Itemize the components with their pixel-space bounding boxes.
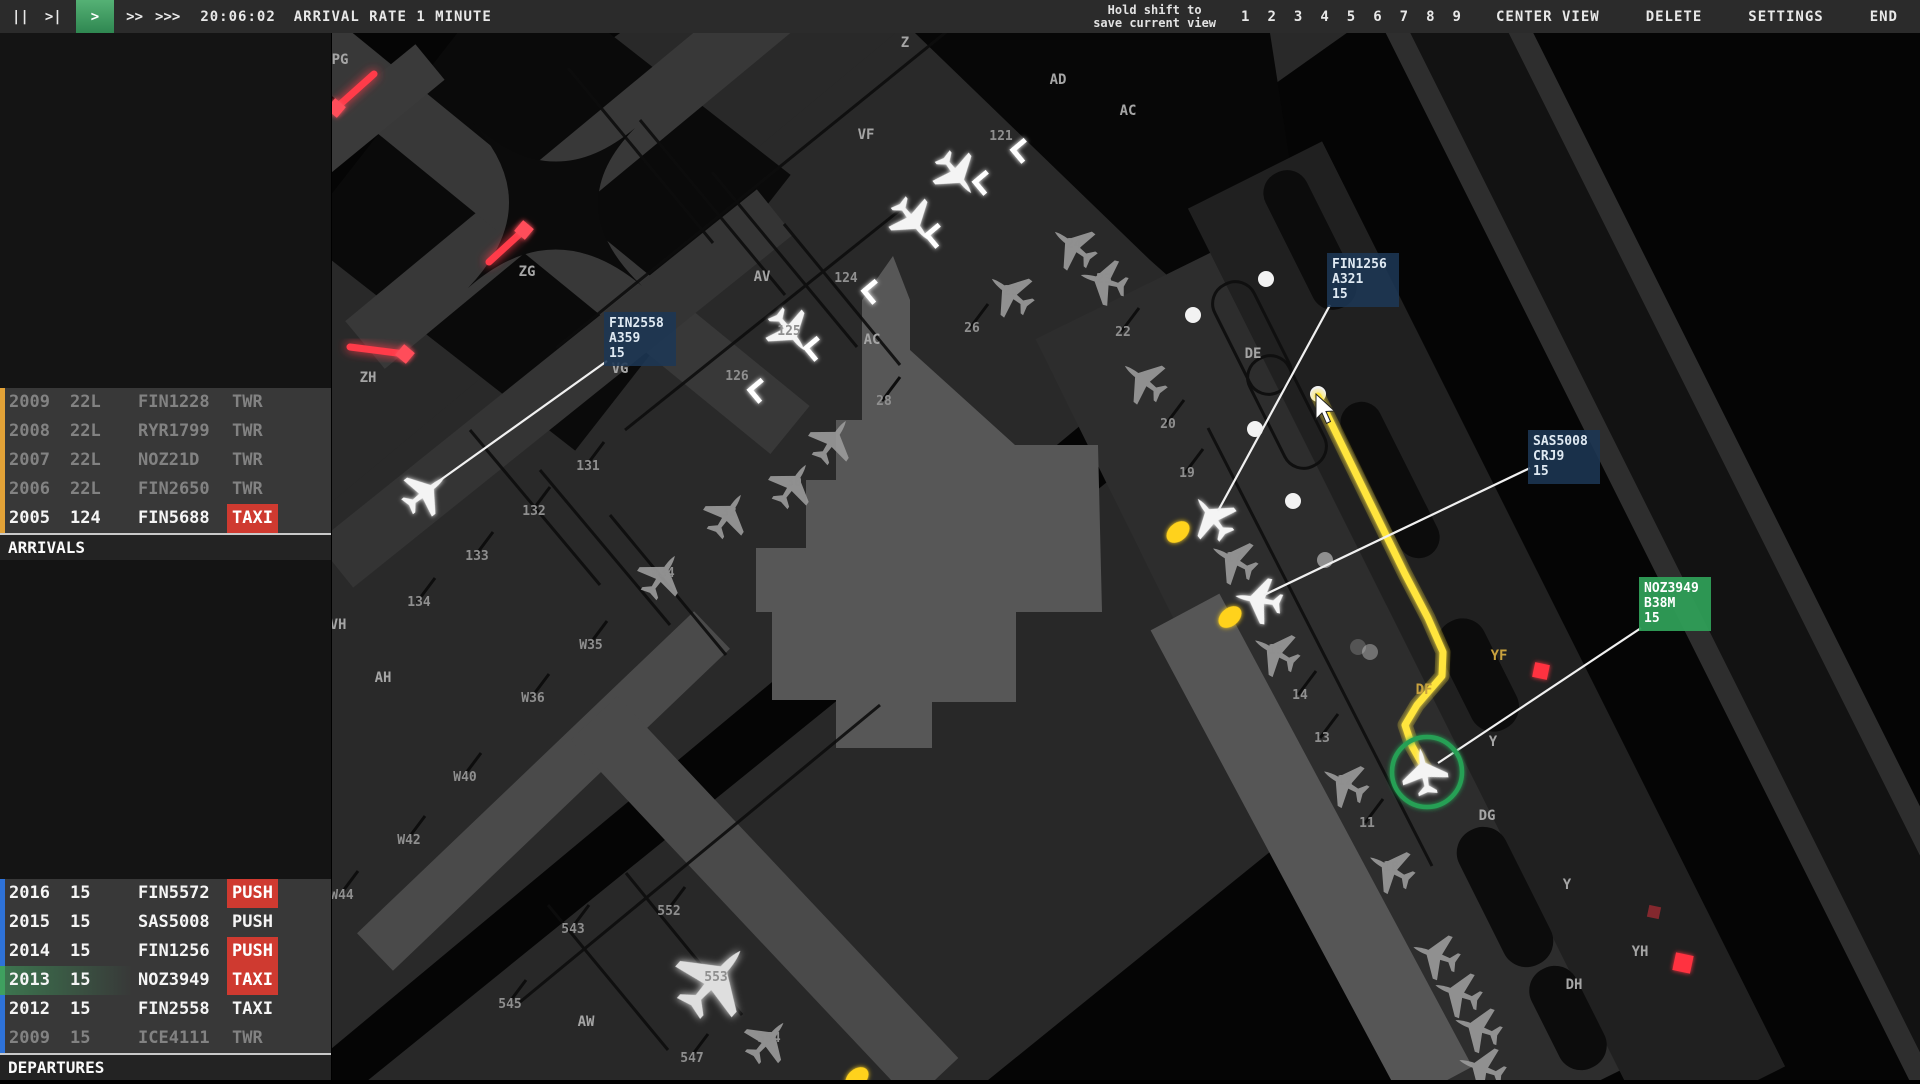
view-slot-3[interactable]: 3 [1294, 9, 1302, 25]
center-view-button[interactable]: CENTER VIEW [1496, 9, 1600, 25]
arrival-strip-row[interactable]: 200922LFIN1228TWR [0, 388, 331, 417]
strip-runway: 124 [70, 504, 101, 533]
departure-strip-row[interactable]: 201515SAS5008PUSH [0, 908, 331, 937]
save-view-hint: Hold shift to save current view [1093, 4, 1216, 30]
stand-label: 553 [704, 970, 727, 985]
strip-time: 2008 [9, 417, 50, 446]
strip-callsign: SAS5008 [138, 908, 210, 937]
strip-time: 2014 [9, 937, 50, 966]
stand-label: 543 [561, 922, 584, 937]
strip-time: 2013 [9, 966, 50, 995]
stand-label: 547 [680, 1051, 703, 1066]
stand-label: 32 [721, 505, 737, 520]
stand-label: 13 [1314, 731, 1330, 746]
strip-time: 2005 [9, 504, 50, 533]
strip-time: 2012 [9, 995, 50, 1024]
strip-time: 2016 [9, 879, 50, 908]
strip-runway: 15 [70, 937, 90, 966]
strip-status: TWR [232, 475, 263, 504]
strip-runway: 15 [70, 1024, 90, 1053]
view-slot-8[interactable]: 8 [1426, 9, 1434, 25]
view-slot-7[interactable]: 7 [1400, 9, 1408, 25]
strip-status: TAXI [232, 995, 273, 1024]
stand-label: W42 [397, 833, 420, 848]
taxiway-label: ZG [519, 264, 536, 280]
strip-runway: 15 [70, 908, 90, 937]
stand-label: 552 [657, 904, 680, 919]
strip-callsign: RYR1799 [138, 417, 210, 446]
taxiway-label: DE [1245, 346, 1262, 362]
aircraft-tag-FIN2558[interactable]: FIN2558A35915 [604, 312, 676, 366]
departure-strip-row[interactable]: 201615FIN5572PUSH [0, 879, 331, 908]
fast-forward-button[interactable]: >> [126, 9, 143, 25]
taxiway-label: AC [1120, 103, 1137, 119]
strip-callsign: FIN1228 [138, 388, 210, 417]
taxiway-label: Y [1563, 877, 1572, 893]
arrival-strip-row[interactable]: 2005124FIN5688TAXI [0, 504, 331, 533]
taxiway-label: AD [1050, 72, 1067, 88]
departures-strip-list: 201615FIN5572PUSH201515SAS5008PUSH201415… [0, 879, 331, 1053]
stand-label: 554 [757, 1031, 781, 1046]
stand-label: W35 [579, 638, 602, 653]
play-button-active[interactable]: > [76, 0, 114, 33]
stand-label: 17 [1226, 551, 1242, 566]
view-slot-6[interactable]: 6 [1373, 9, 1381, 25]
stand-label: 14 [1292, 688, 1308, 703]
strip-time: 2007 [9, 446, 50, 475]
arrival-strip-row[interactable]: 200722LNOZ21DTWR [0, 446, 331, 475]
strip-status: TWR [232, 1024, 263, 1053]
sim-clock: 20:06:02 [200, 9, 275, 25]
stand-label: W40 [453, 770, 477, 785]
strip-time: 2006 [9, 475, 50, 504]
strip-runway: 22L [70, 417, 101, 446]
taxiway-label: DH [1566, 977, 1583, 993]
taxiway-label: YF [1491, 648, 1508, 664]
taxiway-label: YH [1632, 944, 1649, 960]
view-slot-buttons: 123456789 [1232, 9, 1470, 25]
delete-button[interactable]: DELETE [1646, 9, 1703, 25]
stand-label: 23 [1096, 272, 1112, 287]
view-slot-2[interactable]: 2 [1267, 9, 1275, 25]
stand-label: 20 [1160, 417, 1176, 432]
step-button[interactable]: >| [45, 9, 62, 25]
strip-time: 2009 [9, 388, 50, 417]
taxiway-label: VH [330, 617, 347, 633]
top-toolbar: || >| > >> >>> 20:06:02 ARRIVAL RATE 1 M… [0, 0, 1920, 33]
arrivals-strip-list: 200922LFIN1228TWR200822LRYR1799TWR200722… [0, 388, 331, 533]
strip-status: TWR [232, 417, 263, 446]
taxiway-label: Z [901, 35, 909, 51]
taxiway-label: AH [375, 670, 392, 686]
stand-label: 133 [465, 549, 488, 564]
strip-callsign: FIN2558 [138, 995, 210, 1024]
stand-label: 28 [876, 394, 892, 409]
view-slot-9[interactable]: 9 [1453, 9, 1461, 25]
stand-label: 126 [725, 369, 749, 384]
arrival-strip-row[interactable]: 200822LRYR1799TWR [0, 417, 331, 446]
stand-label: 19 [1179, 466, 1195, 481]
stand-label: 545 [498, 997, 521, 1012]
strip-status: PUSH [232, 908, 273, 937]
fastest-forward-button[interactable]: >>> [155, 9, 180, 25]
strip-runway: 15 [70, 995, 90, 1024]
end-button[interactable]: END [1870, 9, 1898, 25]
stand-label: 22 [1115, 325, 1131, 340]
departure-strip-row[interactable]: 201315NOZ3949TAXI [0, 966, 331, 995]
arrival-rate-label: ARRIVAL RATE 1 MINUTE [294, 9, 492, 25]
departures-header: DEPARTURES [0, 1053, 331, 1080]
strip-callsign: FIN5572 [138, 879, 210, 908]
taxiway-label: AV [754, 269, 771, 285]
flight-strip-panel: 200922LFIN1228TWR200822LRYR1799TWR200722… [0, 33, 332, 1080]
stand-label: 131 [576, 459, 600, 474]
taxiway-label: VF [858, 127, 875, 143]
stand-label: 11 [1359, 816, 1375, 831]
taxiway-label: DG [1479, 808, 1496, 824]
stand-label: 25 [1003, 284, 1019, 299]
departure-strip-row[interactable]: 200915ICE4111TWR [0, 1024, 331, 1053]
strip-runway: 15 [70, 966, 90, 995]
strip-callsign: FIN1256 [138, 937, 210, 966]
departure-strip-row[interactable]: 201215FIN2558TAXI [0, 995, 331, 1024]
pause-button[interactable]: || [12, 9, 29, 25]
taxiway-label: Y [1489, 734, 1498, 750]
stand-label: W34 [651, 566, 675, 581]
view-slot-5[interactable]: 5 [1347, 9, 1355, 25]
strip-runway: 22L [70, 388, 101, 417]
taxiway-label: DF [1416, 682, 1433, 698]
stand-label: W44 [330, 888, 354, 903]
arrival-strip-row[interactable]: 200622LFIN2650TWR [0, 475, 331, 504]
stand-label: 26 [964, 321, 980, 336]
strip-callsign: FIN5688 [138, 504, 210, 533]
stand-label: 30 [786, 475, 802, 490]
strip-status-badge: TAXI [227, 966, 278, 995]
strip-status-badge: PUSH [227, 937, 278, 966]
strip-time: 2015 [9, 908, 50, 937]
strip-callsign: NOZ21D [138, 446, 199, 475]
stand-label: 24 [1066, 237, 1082, 252]
stand-label: 134 [407, 595, 431, 610]
aircraft-tag-FIN1256[interactable]: FIN1256A32115 [1327, 253, 1399, 307]
stand-label: 15 [1268, 643, 1284, 658]
strip-time: 2009 [9, 1024, 50, 1053]
strip-status: TWR [232, 388, 263, 417]
taxiway-label: AW [578, 1014, 595, 1030]
strip-runway: 15 [70, 879, 90, 908]
taxiway-label: PG [332, 52, 349, 68]
view-slot-1[interactable]: 1 [1241, 9, 1249, 25]
strip-runway: 22L [70, 446, 101, 475]
taxiway-label: AC [864, 332, 881, 348]
taxiway-label: ZH [360, 370, 377, 386]
strip-status-badge: PUSH [227, 879, 278, 908]
strip-status-badge: TAXI [227, 504, 278, 533]
settings-button[interactable]: SETTINGS [1748, 9, 1823, 25]
departure-strip-row[interactable]: 201415FIN1256PUSH [0, 937, 331, 966]
stand-label: W36 [521, 691, 545, 706]
aircraft-tag-SAS5008[interactable]: SAS5008CRJ915 [1528, 430, 1600, 484]
strip-status: TWR [232, 446, 263, 475]
stand-label: 10 [1383, 860, 1399, 875]
stand-label: 132 [522, 504, 545, 519]
aircraft-tag-NOZ3949[interactable]: NOZ3949B38M15 [1639, 577, 1711, 631]
strip-callsign: ICE4111 [138, 1024, 210, 1053]
stand-label: 124 [834, 271, 858, 286]
strip-callsign: NOZ3949 [138, 966, 210, 995]
stand-label: 12 [1337, 774, 1353, 789]
arrivals-header: ARRIVALS [0, 533, 331, 560]
view-slot-4[interactable]: 4 [1320, 9, 1328, 25]
stand-label: 121 [989, 129, 1013, 144]
strip-callsign: FIN2650 [138, 475, 210, 504]
stand-label: 125 [777, 324, 800, 339]
strip-runway: 22L [70, 475, 101, 504]
